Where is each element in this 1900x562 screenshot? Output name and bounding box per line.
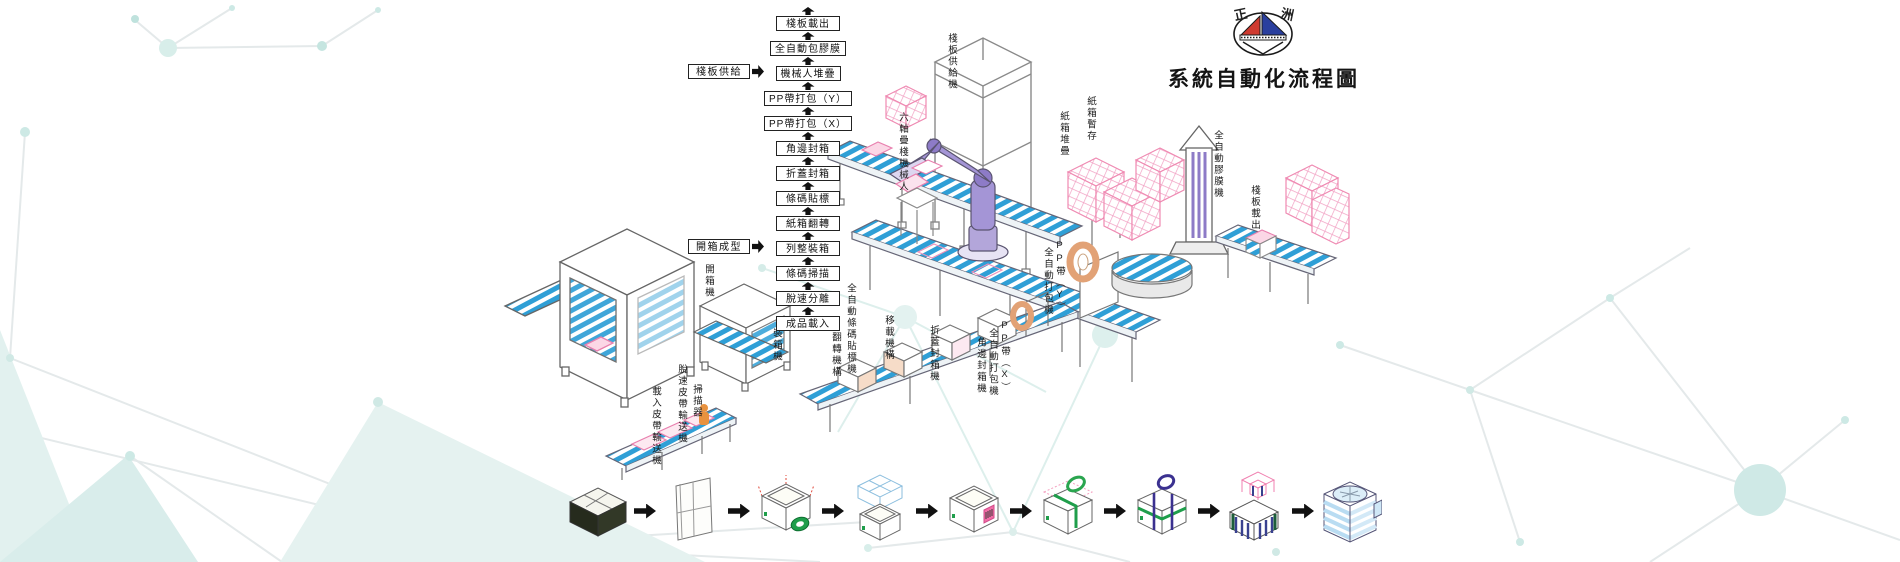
pallet-wrapping-icon bbox=[1318, 470, 1382, 548]
label-pp-band-x: PP帶（X） bbox=[997, 320, 1011, 394]
company-logo: 正 洲 bbox=[1232, 4, 1294, 60]
chain-step: 條碼掃描 bbox=[776, 266, 840, 281]
label-flip-mechanism: 翻轉機構 bbox=[828, 332, 842, 378]
side-input-carton-forming: 開箱成型 bbox=[688, 239, 764, 254]
side-input-pallet-supply: 棧板供給 bbox=[688, 64, 764, 79]
label-pp-band-x-machine: 全自動打包機 bbox=[985, 328, 999, 397]
up-arrow-icon bbox=[802, 107, 815, 115]
product-flow-row bbox=[566, 470, 1382, 548]
carton-strapping-double-icon bbox=[1130, 470, 1194, 548]
up-arrow-icon bbox=[802, 82, 815, 90]
side-input-label: 棧板供給 bbox=[688, 64, 750, 79]
up-arrow-icon bbox=[802, 157, 815, 165]
right-arrow-icon bbox=[1198, 504, 1220, 519]
right-arrow-icon bbox=[916, 504, 938, 519]
robot-palletizing-icon bbox=[1224, 470, 1288, 548]
up-arrow-icon bbox=[802, 7, 815, 15]
label-pallet-out: 棧板載出 bbox=[1247, 185, 1261, 231]
label-carton-packing-machine: 裝箱機 bbox=[769, 328, 783, 363]
up-arrow-icon bbox=[802, 307, 815, 315]
label-scanner: 掃描器 bbox=[689, 384, 703, 419]
chain-step: 條碼貼標 bbox=[776, 191, 840, 206]
carton-labeling-icon bbox=[942, 470, 1006, 548]
page-title: 系統自動化流程圖 bbox=[1168, 63, 1358, 93]
chain-step: 脫速分離 bbox=[776, 291, 840, 306]
right-arrow-icon bbox=[634, 504, 656, 519]
carton-strapping-single-icon bbox=[1036, 470, 1100, 548]
up-arrow-icon bbox=[802, 207, 815, 215]
chain-step: 紙箱翻轉 bbox=[776, 216, 840, 231]
up-arrow-icon bbox=[802, 282, 815, 290]
chain-step: PP帶打包（Y） bbox=[764, 91, 852, 106]
carton-opening-cabinet bbox=[505, 229, 694, 407]
flat-carton-stack-icon bbox=[566, 470, 630, 548]
carton-pallet-stacks bbox=[886, 86, 1349, 244]
label-transfer-mechanism: 移載機構 bbox=[881, 315, 895, 361]
up-arrow-icon bbox=[802, 257, 815, 265]
brand-block: 正 洲 系統自動化流程圖 bbox=[1168, 4, 1358, 93]
label-loading-belt-conveyor: 載入皮帶輸送機 bbox=[648, 386, 662, 467]
label-six-axis-robot: 六軸疊棧機械人 bbox=[895, 112, 909, 193]
folded-flat-carton-icon bbox=[660, 470, 724, 548]
process-machines bbox=[838, 292, 1048, 392]
label-auto-wrapping-machine: 全自動膠膜機 bbox=[1210, 130, 1224, 199]
right-arrow-icon bbox=[1292, 504, 1314, 519]
label-carton-buffer: 紙箱暫存 bbox=[1083, 96, 1097, 142]
right-arrow-icon bbox=[822, 504, 844, 519]
carton-loading-icon bbox=[848, 470, 912, 548]
label-carton-opening-machine: 開箱機 bbox=[701, 264, 715, 299]
right-arrow-icon bbox=[728, 504, 750, 519]
label-carton-stacking: 紙箱堆疊 bbox=[1056, 111, 1070, 157]
wrapping-turntable bbox=[1112, 254, 1192, 298]
right-arrow-icon bbox=[752, 65, 764, 78]
chain-step: 棧板載出 bbox=[776, 16, 840, 31]
chain-step: PP帶打包（X） bbox=[764, 116, 852, 131]
label-pp-band-y-machine: 全自動打包機 bbox=[1040, 247, 1054, 316]
process-flow-chain: 棧板載出 全自動包膠膜 機械人堆疊 PP帶打包（Y） PP帶打包（X） 角邊封箱… bbox=[769, 6, 847, 331]
up-arrow-icon bbox=[802, 182, 815, 190]
right-arrow-icon bbox=[752, 240, 764, 253]
up-arrow-icon bbox=[802, 57, 815, 65]
label-release-belt-conveyor: 脫速皮帶輸送機 bbox=[674, 364, 688, 445]
chain-step: 角邊封箱 bbox=[776, 141, 840, 156]
chain-step: 全自動包膠膜 bbox=[770, 41, 846, 56]
label-flap-sealing-machine: 折蓋封箱機 bbox=[926, 325, 940, 383]
carton-forming-tape-icon bbox=[754, 470, 818, 548]
label-pallet-supply-machine: 棧板供給機 bbox=[944, 33, 958, 91]
side-input-label: 開箱成型 bbox=[688, 239, 750, 254]
right-arrow-icon bbox=[1010, 504, 1032, 519]
right-arrow-icon bbox=[1104, 504, 1126, 519]
up-arrow-icon bbox=[802, 32, 815, 40]
up-arrow-icon bbox=[802, 132, 815, 140]
chain-step: 成品載入 bbox=[776, 316, 840, 331]
automation-flow-banner: 載入皮帶輸送機 脫速皮帶輸送機 掃描器 開箱機 裝箱機 翻轉機構 全自動條碼貼標… bbox=[0, 0, 1900, 562]
chain-step: 機械人堆疊 bbox=[776, 66, 841, 81]
chain-step: 折蓋封箱 bbox=[776, 166, 840, 181]
label-pp-band-y: PP帶（Y） bbox=[1052, 240, 1066, 314]
chain-step: 列整裝箱 bbox=[776, 241, 840, 256]
up-arrow-icon bbox=[802, 232, 815, 240]
